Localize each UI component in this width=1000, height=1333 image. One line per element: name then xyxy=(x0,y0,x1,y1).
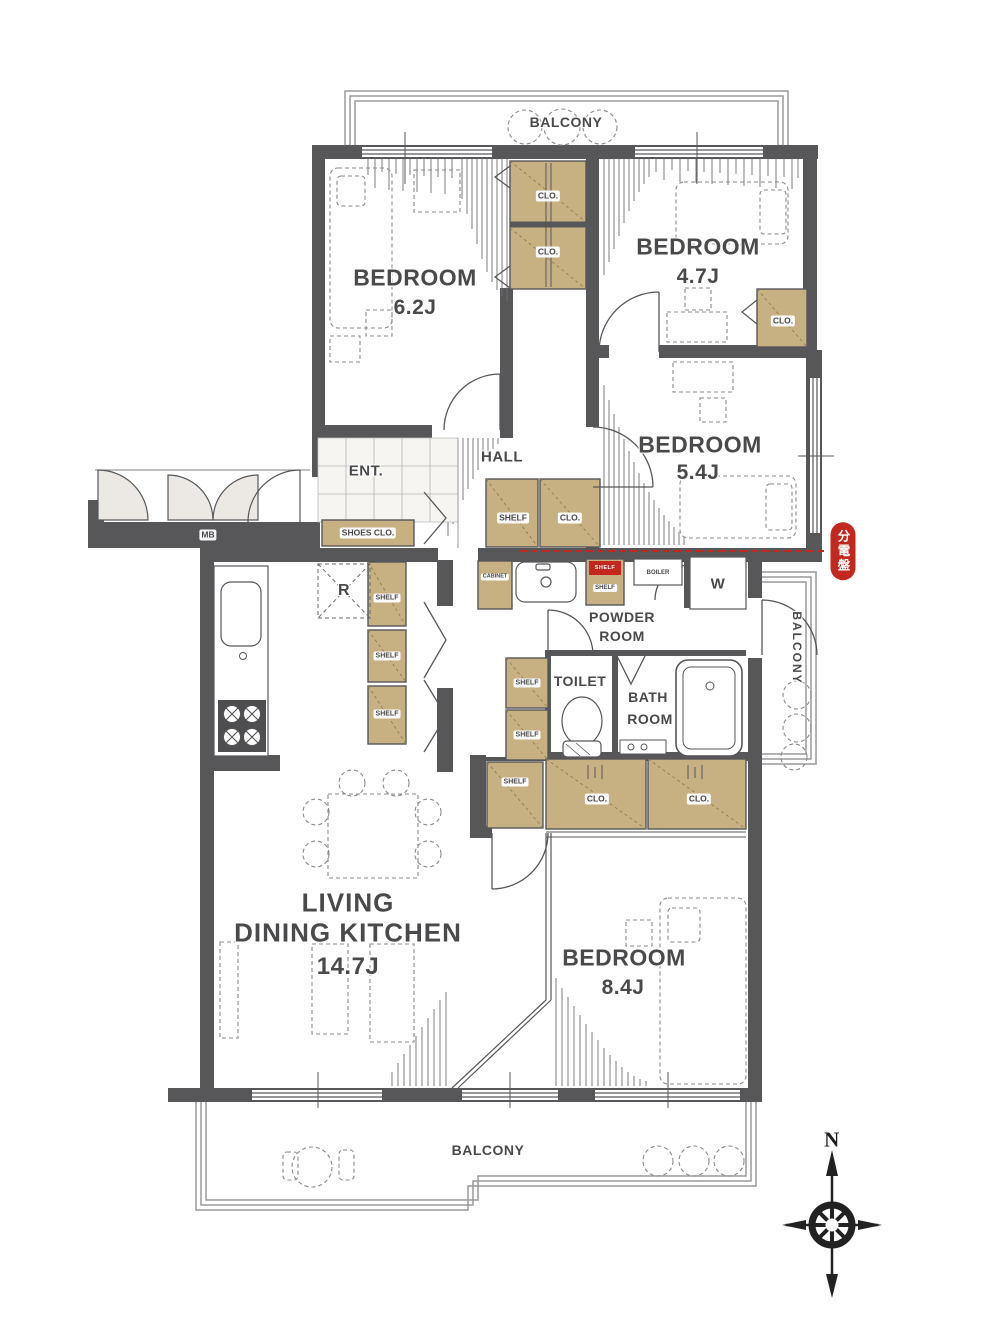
bath-label-2: ROOM xyxy=(627,711,673,727)
floorplan-drawing xyxy=(0,0,1000,1333)
ldk-size: 14.7J xyxy=(317,953,380,981)
bedroom-d-name: BEDROOM xyxy=(562,945,686,972)
bedroom-a-name: BEDROOM xyxy=(353,265,477,292)
shelf-label-powder: SHELF xyxy=(593,584,617,592)
shelf-label-kitchen-3: SHELF xyxy=(374,710,401,719)
balcony-top-label: BALCONY xyxy=(530,114,603,130)
compass-icon xyxy=(782,1150,882,1298)
closet-label-top-1: CLO. xyxy=(536,191,560,202)
bedroom-d-size: 8.4J xyxy=(602,976,645,1000)
floor-plan: BALCONY BEDROOM 6.2J BEDROOM 4.7J BEDROO… xyxy=(0,0,1000,1333)
closet-label-bottom-1: CLO. xyxy=(585,794,609,805)
bedroom-c-size: 5.4J xyxy=(677,461,720,485)
bedroom-b-name: BEDROOM xyxy=(636,234,760,261)
shelf-label-toilet-2: SHELF xyxy=(514,731,541,740)
balcony-bottom-label: BALCONY xyxy=(452,1142,525,1158)
closet-label-47: CLO. xyxy=(771,316,795,327)
bedroom-a-size: 6.2J xyxy=(394,296,437,320)
bedroom-c-name: BEDROOM xyxy=(638,432,762,459)
closet-label-hall: CLO. xyxy=(558,513,582,524)
toilet-label: TOILET xyxy=(554,673,607,689)
sliding-partition xyxy=(452,833,551,1088)
upper-shelf-tag-label: SHELF xyxy=(595,565,616,571)
washing-machine-label: W xyxy=(711,576,726,593)
shelf-label-hall: SHELF xyxy=(497,513,529,524)
cabinet-label: CABINET xyxy=(481,574,509,581)
bath-label-1: BATH xyxy=(628,689,668,705)
ldk-name-line1: LIVING xyxy=(302,888,395,919)
compass-north-label: N xyxy=(824,1128,840,1153)
bedroom-b-size: 4.7J xyxy=(677,265,720,289)
ldk-name-line2: DINING KITCHEN xyxy=(234,918,462,949)
entrance-label: ENT. xyxy=(349,463,384,480)
powder-room-label-2: ROOM xyxy=(599,628,645,644)
shelf-label-bottomrow: SHELF xyxy=(502,778,529,787)
kitchen-fixtures xyxy=(214,566,268,756)
closet-label-top-2: CLO. xyxy=(536,247,560,258)
shelf-label-toilet-1: SHELF xyxy=(514,679,541,688)
shoes-closet-label: SHOES CLO. xyxy=(340,528,396,539)
hall-label: HALL xyxy=(481,449,523,466)
shelf-label-kitchen-2: SHELF xyxy=(374,652,401,661)
refrigerator-label: R xyxy=(338,582,350,600)
boiler-label: BOILER xyxy=(645,569,672,577)
meter-box-label: MB xyxy=(199,530,216,541)
porch-doors xyxy=(95,470,310,522)
powder-room-label-1: POWDER xyxy=(589,609,655,625)
balcony-right-label: BALCONY xyxy=(790,611,804,684)
distribution-board-badge: 分電盤 xyxy=(831,522,856,580)
closet-label-bottom-2: CLO. xyxy=(687,794,711,805)
bathtub xyxy=(620,660,742,756)
shelf-label-kitchen-1: SHELF xyxy=(374,594,401,603)
toilet-fixture xyxy=(562,697,602,757)
